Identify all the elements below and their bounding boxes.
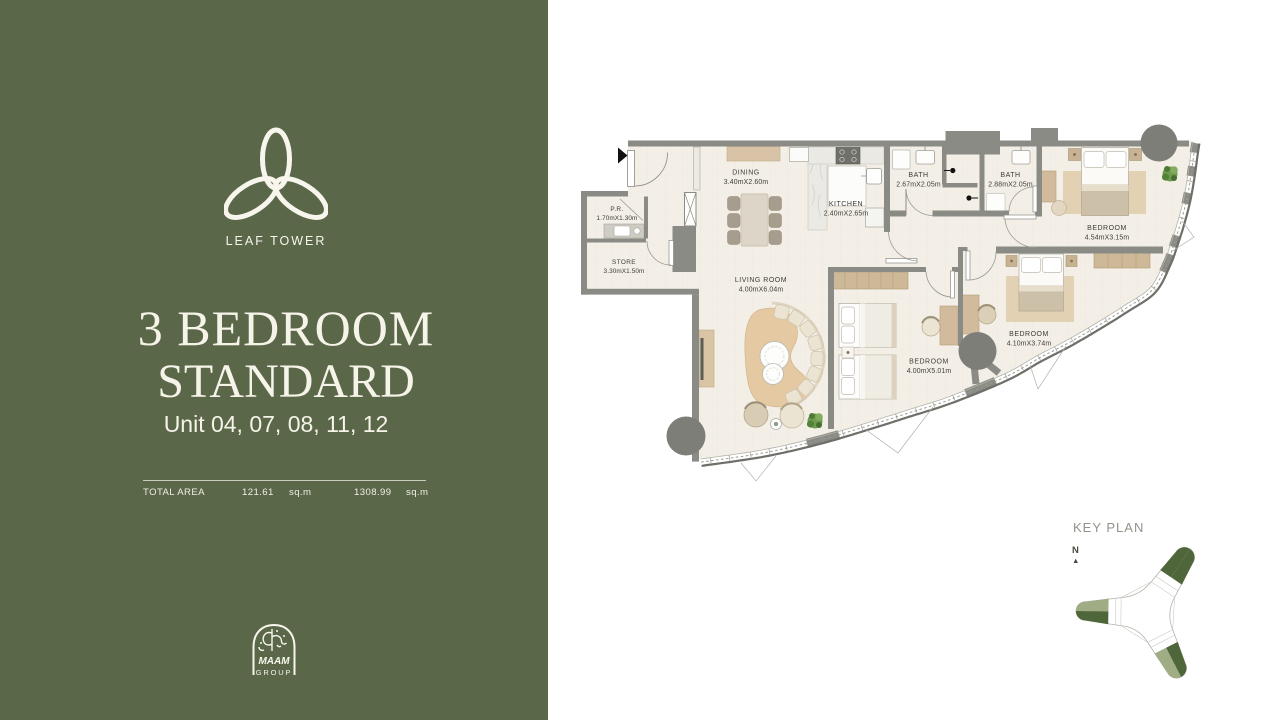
svg-text:2.67mX2.05m: 2.67mX2.05m (896, 181, 941, 188)
svg-text:2.88mX2.05m: 2.88mX2.05m (988, 181, 1033, 188)
svg-text:4.54mX3.15m: 4.54mX3.15m (1085, 234, 1130, 241)
svg-text:LIVING ROOM: LIVING ROOM (735, 277, 787, 284)
svg-text:BEDROOM: BEDROOM (1009, 331, 1049, 338)
svg-text:2.40mX2.65m: 2.40mX2.65m (824, 210, 869, 217)
svg-text:P.R.: P.R. (610, 206, 623, 213)
svg-text:3.30mX1.50m: 3.30mX1.50m (604, 268, 645, 275)
svg-text:BATH: BATH (908, 172, 928, 179)
svg-text:1.70mX1.30m: 1.70mX1.30m (597, 215, 638, 222)
svg-text:BEDROOM: BEDROOM (909, 359, 949, 366)
svg-text:BEDROOM: BEDROOM (1087, 225, 1127, 232)
svg-text:4.00mX5.01m: 4.00mX5.01m (907, 368, 952, 375)
svg-text:3.40mX2.60m: 3.40mX2.60m (724, 179, 769, 186)
svg-text:4.00mX6.04m: 4.00mX6.04m (739, 286, 784, 293)
svg-text:BATH: BATH (1000, 172, 1020, 179)
svg-text:STORE: STORE (612, 259, 636, 266)
svg-text:4.10mX3.74m: 4.10mX3.74m (1007, 340, 1052, 347)
svg-text:DINING: DINING (732, 170, 760, 177)
svg-text:KITCHEN: KITCHEN (829, 201, 863, 208)
